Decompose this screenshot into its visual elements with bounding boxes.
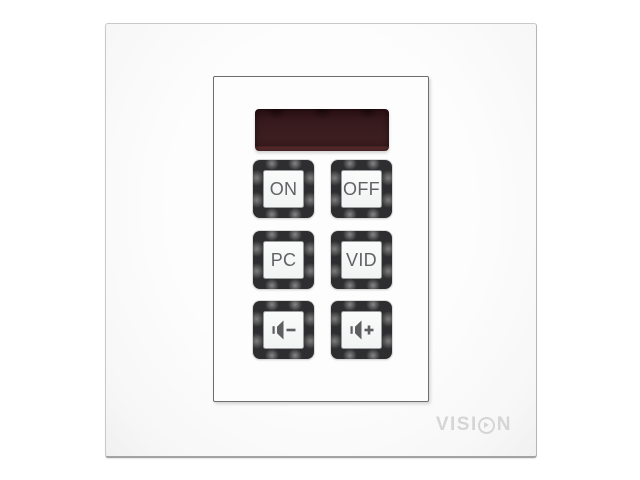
volume-up-icon <box>349 317 375 343</box>
vision-logo-prefix: VISI <box>436 414 478 436</box>
volume-down-button-cap <box>263 311 304 349</box>
volume-down-button[interactable] <box>253 301 314 359</box>
vid-button-label: VID <box>346 251 377 269</box>
pc-button[interactable]: PC <box>253 231 314 289</box>
on-button[interactable]: ON <box>253 160 314 218</box>
vision-logo: VISIN <box>436 414 512 436</box>
volume-down-icon <box>271 317 297 343</box>
volume-up-button[interactable] <box>331 301 392 359</box>
on-button-label: ON <box>270 180 298 198</box>
vision-logo-suffix: N <box>497 414 512 436</box>
off-button[interactable]: OFF <box>331 160 392 218</box>
pc-button-label: PC <box>271 251 297 269</box>
wall-plate: ON OFF PC VID <box>105 23 537 458</box>
volume-up-button-cap <box>341 311 382 349</box>
keypad-module: ON OFF PC VID <box>213 76 429 402</box>
vid-button[interactable]: VID <box>331 231 392 289</box>
product-photo-background: ON OFF PC VID <box>0 0 640 480</box>
vision-logo-play-icon <box>478 417 495 434</box>
off-button-cap: OFF <box>341 170 382 208</box>
off-button-label: OFF <box>343 180 380 198</box>
on-button-cap: ON <box>263 170 304 208</box>
led-display <box>255 109 389 151</box>
pc-button-cap: PC <box>263 241 304 279</box>
vid-button-cap: VID <box>341 241 382 279</box>
